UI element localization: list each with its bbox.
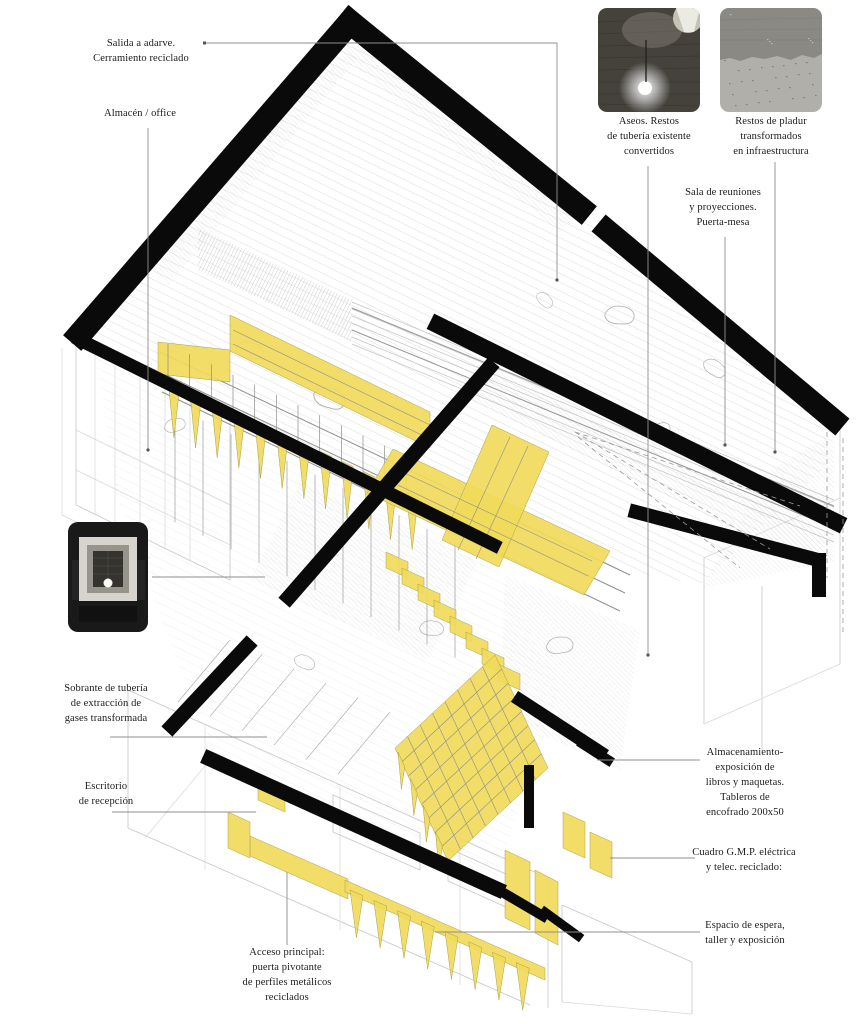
label-sala-reuniones: Sala de reunionesy proyecciones.Puerta-m…	[685, 185, 761, 230]
label-espacio-espera: Espacio de espera,taller y exposición	[705, 918, 785, 948]
label-almacenamiento: Almacenamiento-exposición delibros y maq…	[706, 745, 785, 820]
pladur-photo	[720, 8, 822, 112]
aseos-photo	[598, 3, 703, 114]
axonometric-diagram-page: Salida a adarve.Cerramiento reciclado Al…	[0, 0, 861, 1024]
label-escritorio: Escritoriode recepción	[79, 779, 134, 809]
label-cuadro-gmp: Cuadro G.M.P. eléctricay telec. reciclad…	[692, 845, 795, 875]
label-almacen-office: Almacén / office	[104, 106, 176, 121]
caption-aseos: Aseos. Restosde tubería existenteconvert…	[607, 114, 691, 159]
label-acceso-principal: Acceso principal:puerta pivotantede perf…	[243, 945, 332, 1005]
caption-pladur: Restos de pladurtransformadosen infraest…	[733, 114, 809, 159]
lightwell-photo	[68, 522, 148, 632]
label-salida-adarve: Salida a adarve.Cerramiento reciclado	[93, 36, 189, 66]
label-sobrante-tuberia: Sobrante de tuberíade extracción degases…	[64, 681, 148, 726]
gmp-cabinet	[563, 812, 612, 878]
